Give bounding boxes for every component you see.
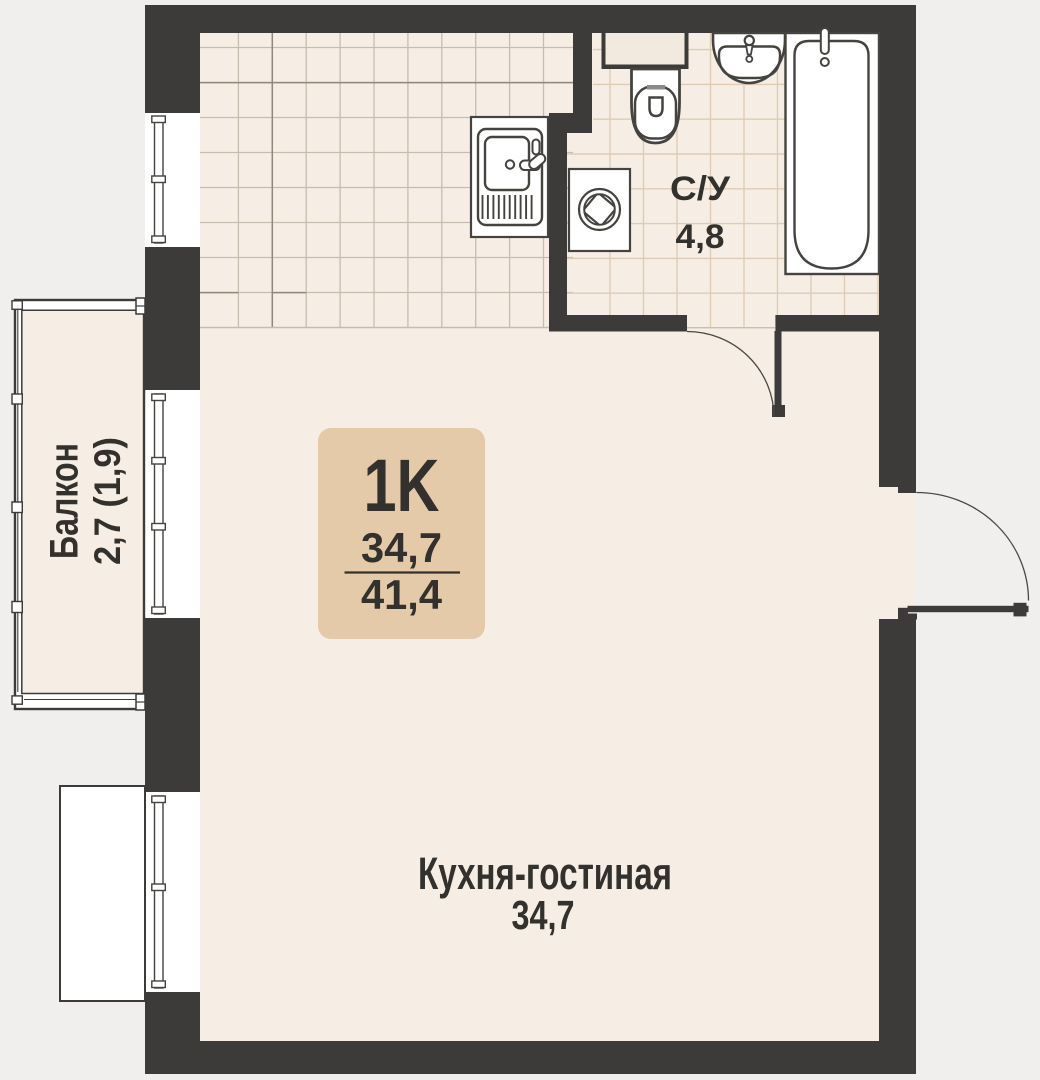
svg-text:34,7: 34,7 <box>361 524 442 571</box>
svg-text:1K: 1K <box>364 444 440 527</box>
svg-text:4,8: 4,8 <box>676 218 725 256</box>
svg-text:34,7: 34,7 <box>512 892 575 938</box>
svg-text:Балкон: Балкон <box>42 443 86 559</box>
svg-text:2,7 (1,9): 2,7 (1,9) <box>87 437 128 565</box>
svg-text:С/У: С/У <box>670 170 731 208</box>
svg-text:41,4: 41,4 <box>361 571 443 618</box>
